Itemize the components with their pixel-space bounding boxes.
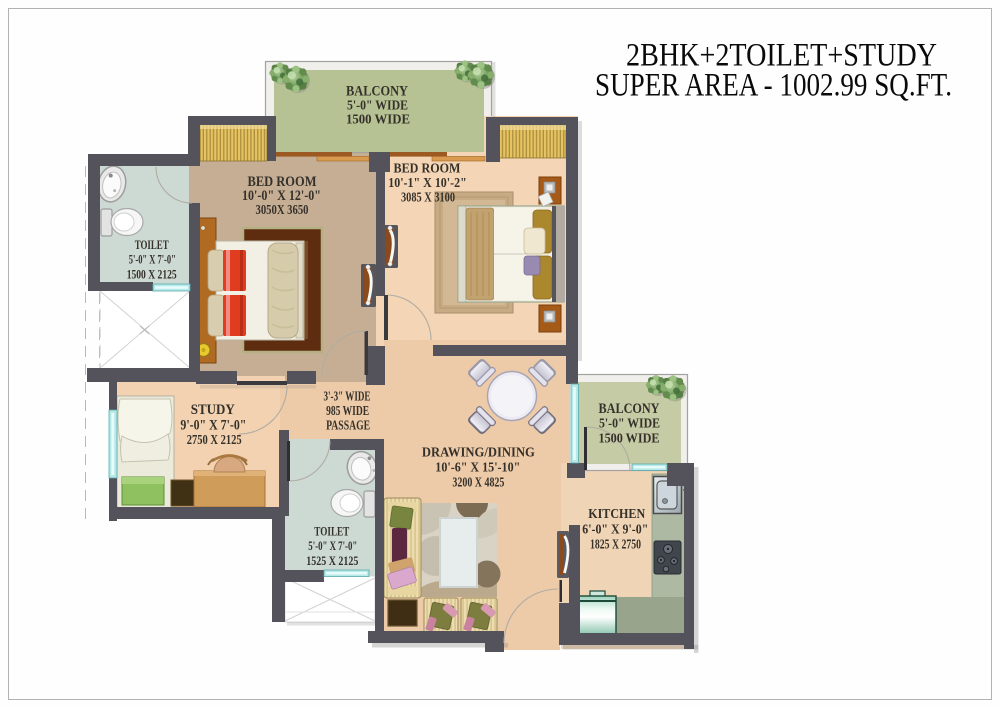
svg-text:SUPER AREA - 1002.99 SQ.FT.: SUPER AREA - 1002.99 SQ.FT. bbox=[595, 68, 952, 104]
svg-text:1500 WIDE: 1500 WIDE bbox=[346, 113, 410, 128]
svg-text:3085 X 3100: 3085 X 3100 bbox=[401, 190, 455, 205]
svg-text:10'-6" X 15'-10": 10'-6" X 15'-10" bbox=[435, 460, 520, 475]
svg-text:TOILET: TOILET bbox=[135, 238, 169, 252]
svg-text:TOILET: TOILET bbox=[314, 525, 349, 539]
svg-text:5'-0" X 7'-0": 5'-0" X 7'-0" bbox=[308, 538, 357, 553]
svg-text:5'-0" X 7'-0": 5'-0" X 7'-0" bbox=[129, 251, 176, 266]
svg-text:STUDY: STUDY bbox=[191, 402, 235, 418]
svg-text:BALCONY: BALCONY bbox=[599, 401, 660, 417]
svg-text:10'-0" X 12'-0": 10'-0" X 12'-0" bbox=[242, 188, 321, 204]
svg-text:BED ROOM: BED ROOM bbox=[394, 162, 461, 177]
svg-text:2750 X 2125: 2750 X 2125 bbox=[187, 433, 242, 448]
svg-text:6'-0" X 9'-0": 6'-0" X 9'-0" bbox=[582, 523, 648, 538]
svg-text:KITCHEN: KITCHEN bbox=[588, 506, 645, 521]
svg-text:1500 X 2125: 1500 X 2125 bbox=[127, 266, 177, 281]
svg-text:3200 X 4825: 3200 X 4825 bbox=[452, 474, 504, 489]
svg-text:3'-3" WIDE: 3'-3" WIDE bbox=[324, 389, 371, 404]
svg-text:DRAWING/DINING: DRAWING/DINING bbox=[422, 444, 535, 459]
svg-text:PASSAGE: PASSAGE bbox=[326, 418, 370, 433]
svg-text:1525 X 2125: 1525 X 2125 bbox=[306, 553, 358, 568]
svg-text:BALCONY: BALCONY bbox=[346, 84, 408, 100]
svg-text:9'-0" X 7'-0": 9'-0" X 7'-0" bbox=[180, 418, 246, 434]
svg-text:5'-0" WIDE: 5'-0" WIDE bbox=[347, 99, 408, 114]
svg-text:5'-0" WIDE: 5'-0" WIDE bbox=[599, 417, 660, 432]
svg-text:3050X 3650: 3050X 3650 bbox=[256, 203, 309, 218]
svg-text:1825 X 2750: 1825 X 2750 bbox=[590, 537, 641, 552]
svg-text:985 WIDE: 985 WIDE bbox=[326, 403, 369, 418]
svg-text:1500 WIDE: 1500 WIDE bbox=[599, 432, 660, 447]
